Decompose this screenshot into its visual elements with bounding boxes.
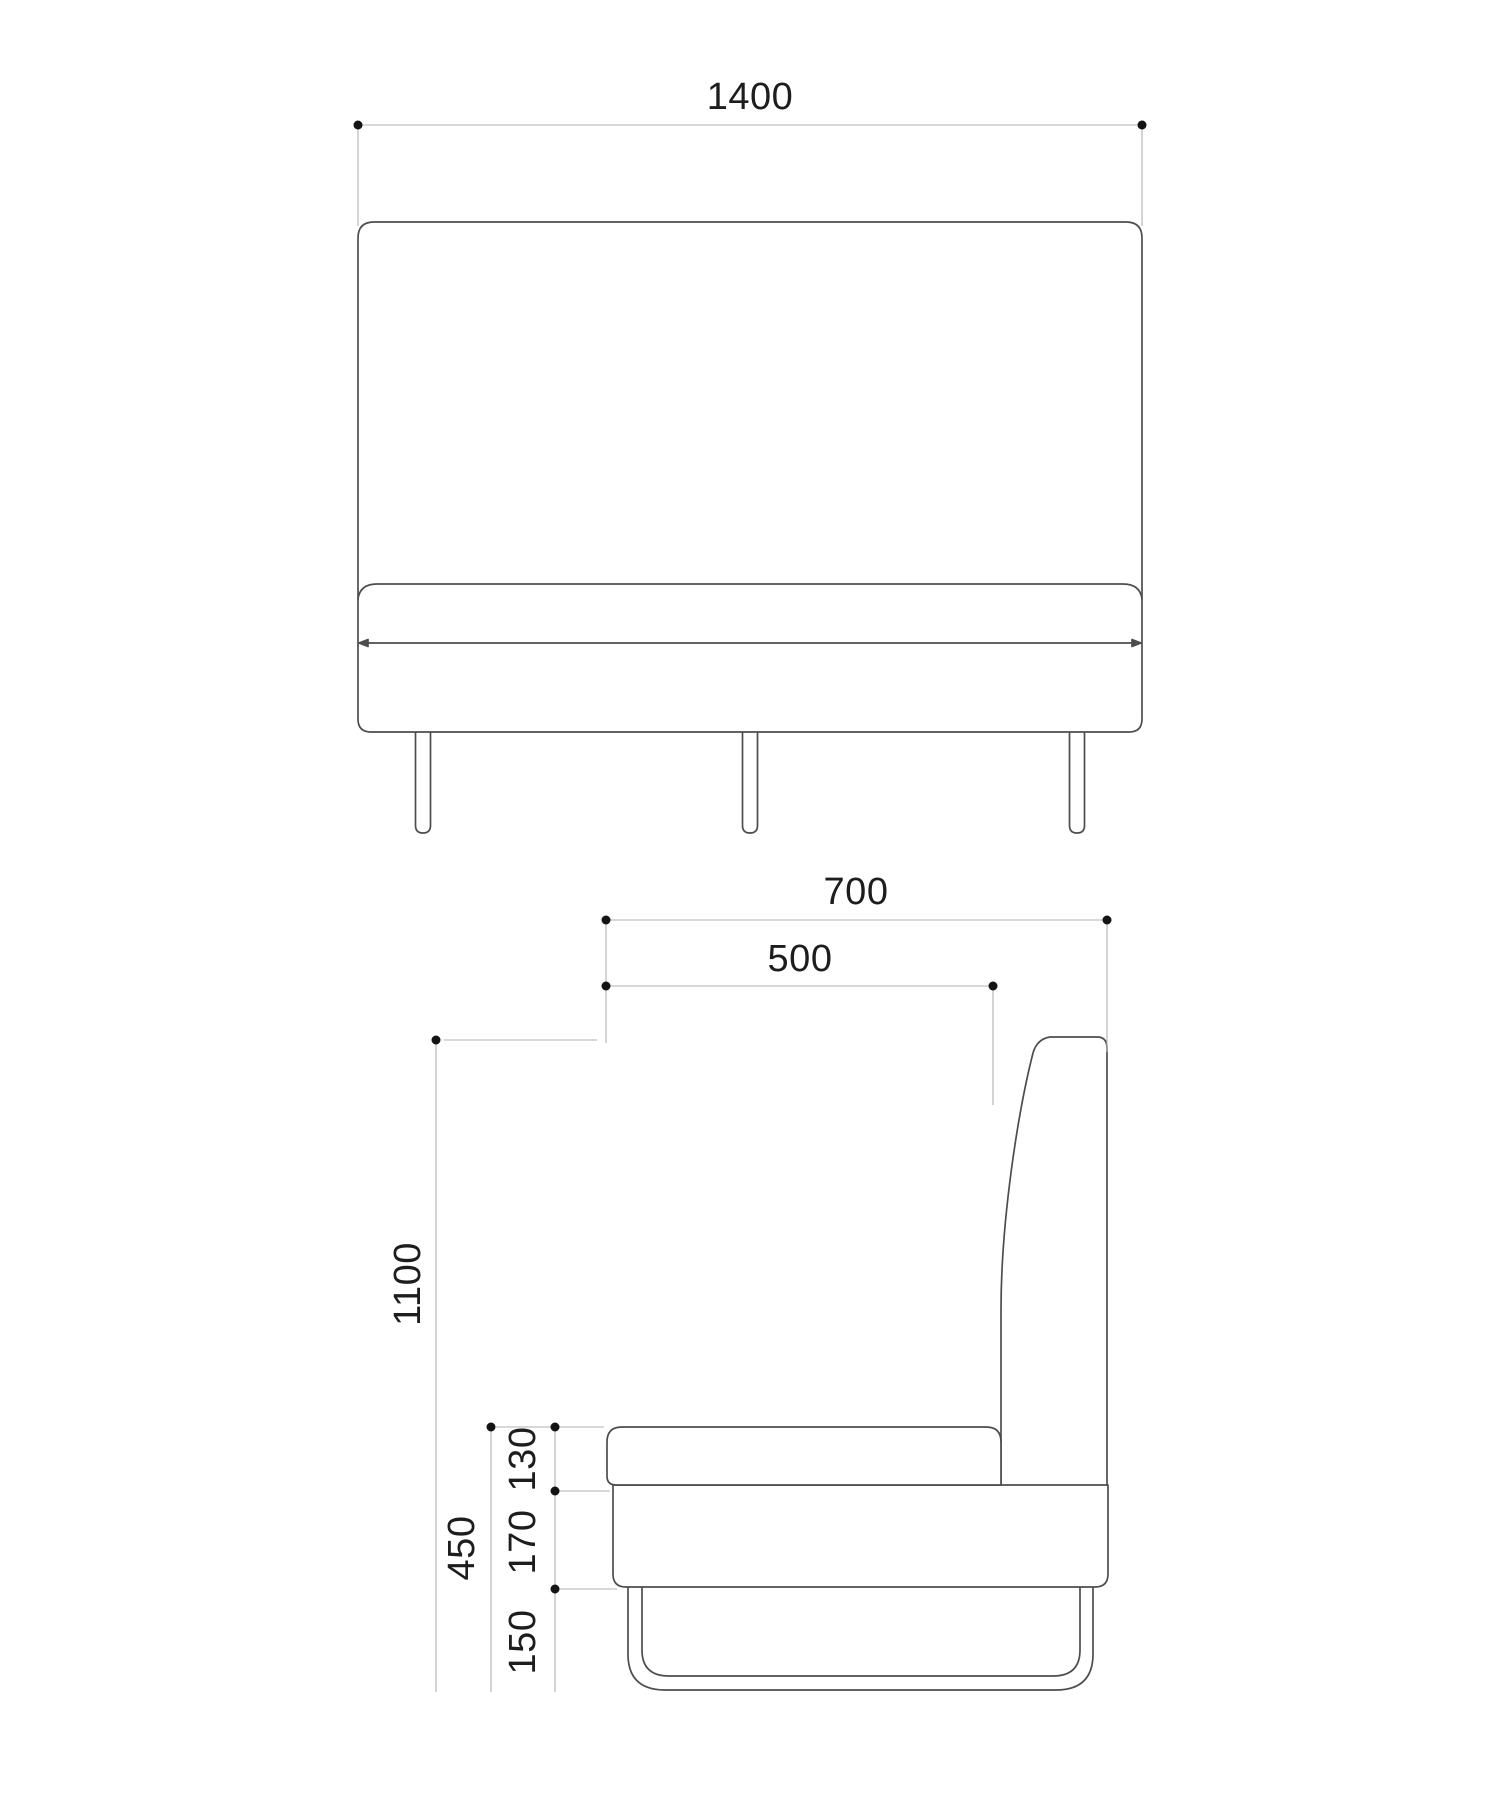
- side-leg-tube-inner: [642, 1585, 1080, 1676]
- side-view-leg-frame: [628, 1585, 1093, 1690]
- side-view-backrest: [1001, 1037, 1107, 1487]
- side-seat-depth-label: 500: [768, 938, 833, 980]
- dim-dot: [551, 1585, 560, 1594]
- side-cushion-outline: [607, 1427, 1001, 1485]
- dim-dot: [602, 916, 611, 925]
- technical-drawing: 1400: [0, 0, 1500, 1800]
- front-leg-right: [1070, 730, 1085, 833]
- dim-dot: [1138, 121, 1147, 130]
- side-cushion-thickness-label: 130: [502, 1427, 544, 1492]
- front-body-outline: [358, 222, 1142, 732]
- dim-dot: [602, 982, 611, 991]
- side-view-seat-cushion: [607, 1427, 1001, 1485]
- side-backrest-outline: [1001, 1037, 1107, 1487]
- front-view-legs: [416, 730, 1085, 833]
- dim-dot: [487, 1423, 496, 1432]
- side-leg-height-label: 150: [502, 1610, 544, 1675]
- front-leg-center: [743, 730, 758, 833]
- dim-dot: [551, 1423, 560, 1432]
- side-seat-height-label: 450: [441, 1516, 483, 1581]
- dim-dot: [1103, 916, 1112, 925]
- side-base-outline: [613, 1485, 1108, 1587]
- side-view: 700 500 1100 450 130 170 150: [387, 871, 1112, 1692]
- dim-dot: [551, 1487, 560, 1496]
- front-width-label: 1400: [707, 76, 794, 118]
- front-width-dimension: [358, 125, 1142, 226]
- side-base-height-label: 170: [502, 1510, 544, 1575]
- front-view-body: [358, 222, 1142, 732]
- side-depth-label: 700: [824, 871, 889, 913]
- side-leg-tube-outer: [628, 1585, 1093, 1690]
- dim-dot: [432, 1036, 441, 1045]
- dim-dot: [989, 982, 998, 991]
- front-width-label-group: 1400: [707, 76, 794, 118]
- side-view-base: [613, 1485, 1108, 1587]
- dim-dot: [354, 121, 363, 130]
- front-view: 1400: [354, 76, 1147, 833]
- side-height-label: 1100: [387, 1242, 429, 1326]
- front-leg-left: [416, 730, 431, 833]
- drawing-canvas: 1400: [0, 0, 1500, 1800]
